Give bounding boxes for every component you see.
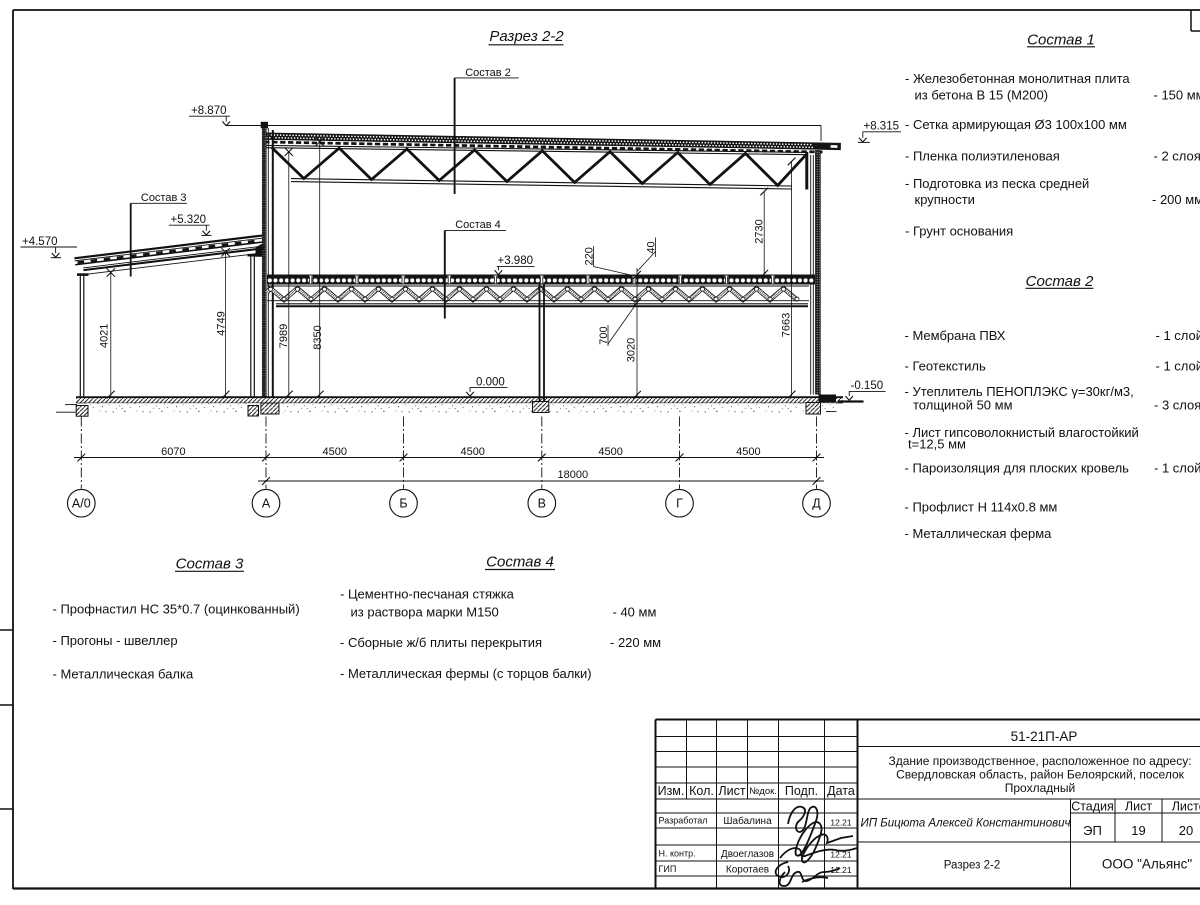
svg-text:из раствора марки М150: из раствора марки М150	[351, 605, 499, 620]
svg-text:Состав 4: Состав 4	[486, 554, 554, 571]
svg-text:- Сборные ж/б плиты перекрытия: - Сборные ж/б плиты перекрытия	[340, 635, 542, 650]
svg-text:- Мембрана ПВХ: - Мембрана ПВХ	[905, 328, 1006, 343]
svg-text:Свердловская область, район Бе: Свердловская область, район Белоярский, …	[896, 768, 1185, 782]
svg-text:Состав 4: Состав 4	[455, 219, 501, 231]
svg-text:2730: 2730	[754, 219, 766, 243]
svg-text:- Прогоны - швеллер: - Прогоны - швеллер	[53, 633, 178, 648]
svg-text:крупности: крупности	[915, 192, 975, 207]
svg-text:20: 20	[1179, 823, 1193, 838]
svg-text:Состав 1: Состав 1	[1027, 31, 1095, 48]
svg-text:+4.570: +4.570	[22, 236, 58, 248]
svg-text:В: В	[538, 497, 546, 511]
svg-text:7989: 7989	[278, 324, 290, 348]
svg-text:№док.: №док.	[749, 786, 777, 797]
svg-text:- Грунт основания: - Грунт основания	[905, 223, 1013, 238]
svg-text:- Подготовка из песка средней: - Подготовка из песка средней	[905, 176, 1089, 191]
svg-text:Состав 2: Состав 2	[465, 67, 511, 79]
svg-text:Разработал: Разработал	[659, 816, 708, 826]
svg-text:из бетона В 15 (М200): из бетона В 15 (М200)	[915, 88, 1049, 103]
svg-text:Б: Б	[399, 497, 407, 511]
svg-text:4021: 4021	[99, 324, 111, 348]
svg-text:Состав 3: Состав 3	[141, 192, 187, 204]
svg-text:Здание производственное, распо: Здание производственное, расположенное п…	[888, 754, 1191, 768]
svg-text:4500: 4500	[323, 446, 347, 458]
svg-text:4749: 4749	[216, 311, 228, 335]
svg-text:- Геотекстиль: - Геотекстиль	[905, 358, 986, 373]
svg-text:Кол.: Кол.	[689, 784, 714, 798]
svg-text:0.000: 0.000	[476, 377, 505, 389]
svg-text:Лист: Лист	[718, 784, 745, 798]
svg-text:- 220 мм: - 220 мм	[610, 635, 661, 650]
svg-text:- 40 мм: - 40 мм	[613, 605, 657, 620]
svg-text:+8.870: +8.870	[191, 105, 227, 117]
svg-text:8350: 8350	[312, 325, 324, 349]
svg-text:ИП Бицюта Алексей Константинов: ИП Бицюта Алексей Константинович	[861, 818, 1071, 830]
svg-text:Стадия: Стадия	[1071, 799, 1114, 813]
svg-text:- 200 мм: - 200 мм	[1152, 192, 1200, 207]
svg-text:19: 19	[1131, 823, 1145, 838]
svg-text:Состав 3: Состав 3	[176, 556, 244, 573]
svg-text:Состав 2: Состав 2	[1026, 273, 1094, 290]
svg-text:- Цементно-песчаная стяжка: - Цементно-песчаная стяжка	[340, 587, 515, 602]
svg-text:Шабалина: Шабалина	[723, 815, 772, 827]
svg-text:- Железобетонная монолитная п: - Железобетонная монолитная плита	[905, 71, 1130, 86]
svg-text:ЭП: ЭП	[1083, 823, 1102, 838]
svg-text:- 1 слой: - 1 слой	[1154, 460, 1200, 475]
svg-text:Изм.: Изм.	[658, 784, 685, 798]
svg-text:Коротаев: Коротаев	[726, 865, 769, 876]
svg-text:- 2 слоя: - 2 слоя	[1154, 148, 1200, 163]
svg-text:Листов: Листов	[1172, 799, 1200, 813]
svg-text:4500: 4500	[598, 446, 622, 458]
svg-text:Разрез 2-2: Разрез 2-2	[944, 860, 1000, 872]
svg-text:- Профлист Н 114х0.8 мм: - Профлист Н 114х0.8 мм	[905, 500, 1058, 515]
svg-text:18000: 18000	[558, 469, 589, 481]
svg-text:Разрез 2-2: Разрез 2-2	[489, 28, 564, 45]
svg-text:Подп.: Подп.	[785, 784, 818, 798]
svg-text:- 1 слой: - 1 слой	[1156, 358, 1200, 373]
svg-text:+5.320: +5.320	[171, 214, 207, 226]
svg-text:- Металлическая фермы (с торцо: - Металлическая фермы (с торцов балки)	[340, 666, 592, 681]
svg-text:- 3 слоя: - 3 слоя	[1154, 398, 1200, 413]
svg-text:- 1 слой: - 1 слой	[1156, 328, 1200, 343]
svg-text:Лист: Лист	[1125, 799, 1152, 813]
svg-text:Двоеглазов: Двоеглазов	[721, 849, 774, 860]
svg-text:Прохладный: Прохладный	[1005, 781, 1075, 795]
svg-text:6070: 6070	[161, 446, 185, 458]
svg-text:- Сетка армирующая Ø3 100х100: - Сетка армирующая Ø3 100х100 мм	[905, 117, 1127, 132]
svg-text:Г: Г	[676, 497, 683, 511]
svg-text:- Металлическая балка: - Металлическая балка	[53, 667, 194, 682]
svg-text:4500: 4500	[460, 446, 484, 458]
svg-text:ООО "Альянс": ООО "Альянс"	[1102, 857, 1192, 872]
svg-text:12.21: 12.21	[830, 818, 852, 828]
svg-text:Д: Д	[812, 497, 821, 511]
svg-text:А/0: А/0	[72, 497, 91, 511]
svg-text:- Металлическая ферма: - Металлическая ферма	[905, 526, 1053, 541]
svg-text:+3.980: +3.980	[498, 255, 534, 267]
svg-text:Дата: Дата	[827, 784, 855, 798]
svg-text:- Профнастил НС 35*0.7 (оцинко: - Профнастил НС 35*0.7 (оцинкованный)	[53, 602, 300, 617]
svg-text:-0.150: -0.150	[851, 380, 884, 392]
svg-text:А: А	[262, 497, 271, 511]
svg-text:- Пленка полиэтиленовая: - Пленка полиэтиленовая	[905, 148, 1060, 163]
svg-text:Н. контр.: Н. контр.	[659, 849, 696, 859]
svg-text:3020: 3020	[626, 338, 638, 362]
svg-text:4500: 4500	[736, 446, 760, 458]
svg-text:51-21П-АР: 51-21П-АР	[1011, 729, 1078, 744]
svg-text:t=12,5 мм: t=12,5 мм	[908, 436, 966, 451]
svg-text:+8.315: +8.315	[864, 120, 900, 132]
svg-text:7663: 7663	[781, 313, 793, 337]
svg-text:толщиной 50 мм: толщиной 50 мм	[913, 398, 1013, 413]
svg-text:ГИП: ГИП	[659, 864, 677, 874]
svg-text:- Пароизоляция для плоских кро: - Пароизоляция для плоских кровель	[905, 460, 1130, 475]
svg-text:- 150 мм: - 150 мм	[1154, 88, 1200, 103]
